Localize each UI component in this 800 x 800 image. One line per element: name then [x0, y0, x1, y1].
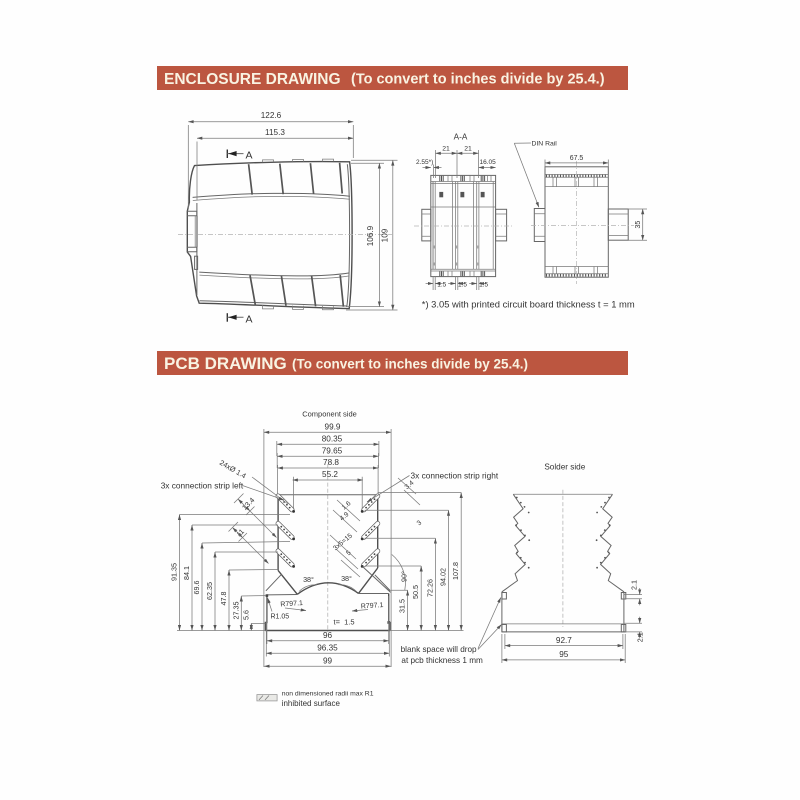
svg-text:79.65: 79.65 [322, 446, 343, 455]
svg-text:38°: 38° [303, 575, 314, 584]
svg-text:115.3: 115.3 [265, 128, 285, 137]
svg-text:t= 1.5: t= 1.5 [334, 617, 355, 626]
svg-text:47.8: 47.8 [219, 592, 228, 606]
svg-text:11: 11 [234, 527, 246, 539]
svg-text:at pcb thickness 1 mm: at pcb thickness 1 mm [401, 656, 483, 665]
svg-text:3x connection strip right: 3x connection strip right [411, 471, 499, 481]
svg-text:95: 95 [559, 650, 569, 659]
svg-text:ENCLOSURE DRAWING: ENCLOSURE DRAWING [164, 71, 341, 88]
svg-text:62.35: 62.35 [205, 582, 214, 600]
svg-text:31.5: 31.5 [398, 599, 407, 613]
svg-text:109: 109 [381, 228, 390, 242]
svg-text:R797.1: R797.1 [280, 600, 303, 609]
svg-text:R1.05: R1.05 [271, 614, 290, 621]
svg-text:96.35: 96.35 [317, 644, 338, 653]
svg-text:(To convert to inches divide b: (To convert to inches divide by 25.4.) [351, 72, 605, 88]
svg-text:2.55*): 2.55*) [416, 159, 433, 166]
svg-text:inhibited surface: inhibited surface [282, 699, 341, 708]
svg-text:69.6: 69.6 [192, 581, 201, 595]
svg-text:16.05: 16.05 [480, 159, 497, 166]
svg-text:72.26: 72.26 [425, 579, 434, 597]
svg-text:80.35: 80.35 [322, 434, 343, 443]
svg-text:3x5=15: 3x5=15 [332, 532, 354, 552]
svg-text:35: 35 [635, 221, 642, 229]
svg-text:Solder side: Solder side [544, 463, 585, 472]
svg-text:96: 96 [323, 631, 333, 640]
svg-text:*) 3.05 with printed circuit b: *) 3.05 with printed circuit board thick… [422, 299, 635, 310]
svg-text:non dimensioned radii max R1: non dimensioned radii max R1 [282, 691, 374, 698]
svg-text:5.6: 5.6 [241, 610, 250, 620]
svg-text:2.1: 2.1 [630, 580, 639, 590]
svg-text:DIN Rail: DIN Rail [532, 141, 558, 148]
svg-text:1.5: 1.5 [437, 281, 446, 288]
svg-text:55.2: 55.2 [322, 470, 338, 479]
svg-text:21: 21 [464, 146, 472, 153]
svg-text:R797.1: R797.1 [361, 602, 384, 611]
svg-text:107.8: 107.8 [451, 562, 460, 580]
svg-text:3.4: 3.4 [404, 479, 416, 491]
svg-text:50.5: 50.5 [411, 585, 420, 599]
svg-text:27.35: 27.35 [231, 602, 240, 620]
svg-text:92.7: 92.7 [556, 636, 572, 645]
svg-text:99: 99 [323, 656, 333, 665]
svg-text:106.9: 106.9 [366, 225, 375, 246]
svg-text:(To convert to inches divide b: (To convert to inches divide by 25.4.) [292, 357, 528, 372]
svg-text:PCB DRAWING: PCB DRAWING [164, 354, 287, 373]
svg-text:84.1: 84.1 [182, 566, 191, 580]
svg-text:99.9: 99.9 [325, 422, 341, 431]
svg-text:3x connection strip left: 3x connection strip left [161, 481, 244, 491]
svg-text:A: A [246, 150, 253, 162]
svg-text:78.8: 78.8 [323, 458, 339, 467]
svg-text:67.5: 67.5 [570, 155, 584, 162]
svg-text:122.6: 122.6 [261, 111, 282, 120]
svg-text:1.6: 1.6 [341, 500, 353, 512]
svg-text:A-A: A-A [454, 133, 468, 142]
svg-text:94.02: 94.02 [439, 568, 448, 586]
svg-text:38°: 38° [341, 574, 352, 583]
svg-text:1.5: 1.5 [479, 281, 488, 288]
svg-text:21: 21 [442, 146, 450, 153]
svg-text:91.35: 91.35 [170, 563, 179, 581]
svg-text:1.5: 1.5 [458, 281, 467, 288]
svg-text:3: 3 [416, 519, 424, 527]
svg-text:Component side: Component side [302, 410, 357, 419]
svg-text:blank space will drop: blank space will drop [401, 645, 477, 654]
svg-text:A: A [246, 313, 253, 325]
svg-text:24xØ 1.4: 24xØ 1.4 [218, 458, 248, 480]
svg-text:2.1: 2.1 [636, 632, 645, 642]
